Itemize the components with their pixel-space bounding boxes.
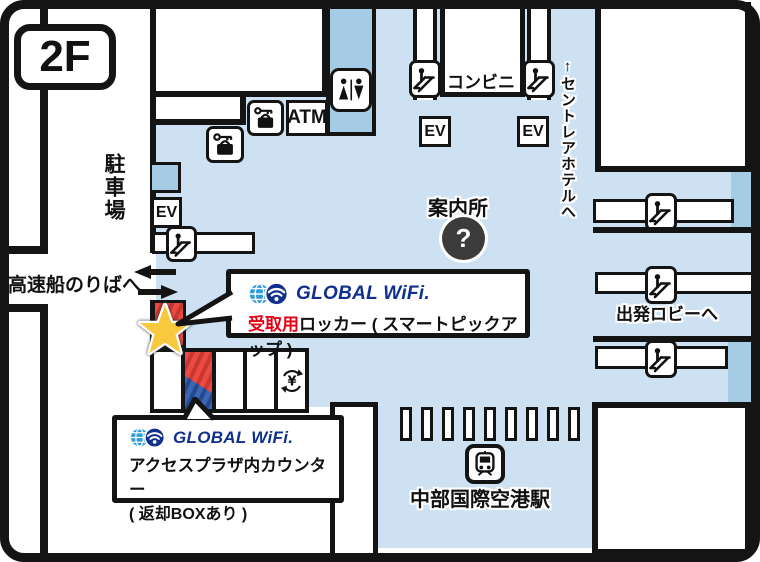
svg-text:¥: ¥ [287, 374, 296, 389]
hotel-label: ↑セントレアホテルへ [557, 58, 578, 220]
arrow-left-icon [134, 265, 176, 279]
atm-box: ATM [286, 100, 328, 136]
ev-label: EV [156, 204, 177, 222]
callout-pickup: GLOBAL WiFi. 受取用ロッカー ( スマートピックアップ ) [226, 269, 530, 338]
escalator-icon-6 [645, 340, 677, 378]
callout-pickup-text: 受取用ロッカー ( スマートピックアップ ) [248, 310, 525, 360]
ticket-gate [442, 407, 454, 441]
ev-box-left: EV [151, 197, 182, 228]
info-question-icon: ? [442, 217, 485, 260]
globalwifi-globe-icon [248, 281, 290, 307]
parking-wall-corner-top [4, 246, 48, 254]
boat-label: 高速船のりばへ [8, 270, 141, 297]
callout-counter-pointer [180, 397, 220, 421]
parking-label: 駐車場 [98, 153, 128, 222]
ev-box-center-left: EV [419, 116, 451, 147]
ev-box-center-right: EV [517, 116, 549, 147]
globalwifi-brand-text: GLOBAL WiFi. [173, 428, 293, 448]
globalwifi-globe-icon [129, 426, 167, 449]
station-label: 中部国際空港駅 [410, 483, 550, 512]
upper-left-room [150, 4, 328, 97]
restroom-icon [330, 68, 372, 112]
globalwifi-brand-text: GLOBAL WiFi. [296, 283, 430, 305]
right-wall-line-1 [593, 227, 751, 233]
right-zone-square-2 [728, 342, 751, 405]
floor-badge: 2F [14, 24, 116, 90]
globalwifi-logo: GLOBAL WiFi. [248, 281, 525, 307]
coin-locker-icon [206, 126, 244, 163]
ticket-gate [568, 407, 580, 441]
konbini-label: コンビニ [447, 68, 515, 93]
ticket-gate [526, 407, 538, 441]
right-zone-square-1 [731, 172, 752, 227]
ticket-gate [463, 407, 475, 441]
callout-counter: GLOBAL WiFi. アクセスプラザ内カウンター ( 返却BOXあり ) [112, 415, 344, 503]
ticket-gate [484, 407, 496, 441]
upper-right-room [595, 2, 751, 172]
ticket-gates [400, 407, 580, 441]
ticket-gate [400, 407, 412, 441]
ticket-gate [421, 407, 433, 441]
question-mark: ? [456, 223, 472, 254]
pickup-highlight: 受取用 [248, 315, 299, 334]
globalwifi-logo: GLOBAL WiFi. [129, 426, 339, 449]
parking-wall-vertical-bottom [40, 304, 48, 555]
callout-pickup-pointer [174, 286, 234, 332]
atm-label: ATM [287, 107, 327, 129]
currency-exchange-icon: ¥ [279, 368, 305, 394]
escalator-icon-2 [523, 60, 555, 98]
escalator-icon-5 [645, 266, 677, 304]
ev-label: EV [424, 123, 445, 141]
airport-floor-map: { "floor_badge": "2F", "left_area": { "p… [0, 0, 760, 562]
arrow-right-icon [138, 285, 178, 299]
callout-counter-line2: ( 返却BOXあり ) [129, 500, 339, 524]
escalator-icon-1 [409, 60, 441, 98]
escalator-icon-3 [166, 226, 197, 262]
left-zone-square [152, 162, 181, 193]
coin-locker-icon-2 [247, 100, 284, 136]
escalator-icon-4 [645, 193, 677, 231]
train-station-icon [465, 444, 505, 484]
floor-badge-text: 2F [39, 35, 90, 79]
ev-label: EV [522, 123, 543, 141]
departure-label: 出発ロビーへ [616, 300, 718, 325]
ticket-gate [505, 407, 517, 441]
lower-right-room [592, 402, 751, 555]
ticket-gate [547, 407, 559, 441]
callout-counter-line1: アクセスプラザ内カウンター [129, 452, 339, 500]
